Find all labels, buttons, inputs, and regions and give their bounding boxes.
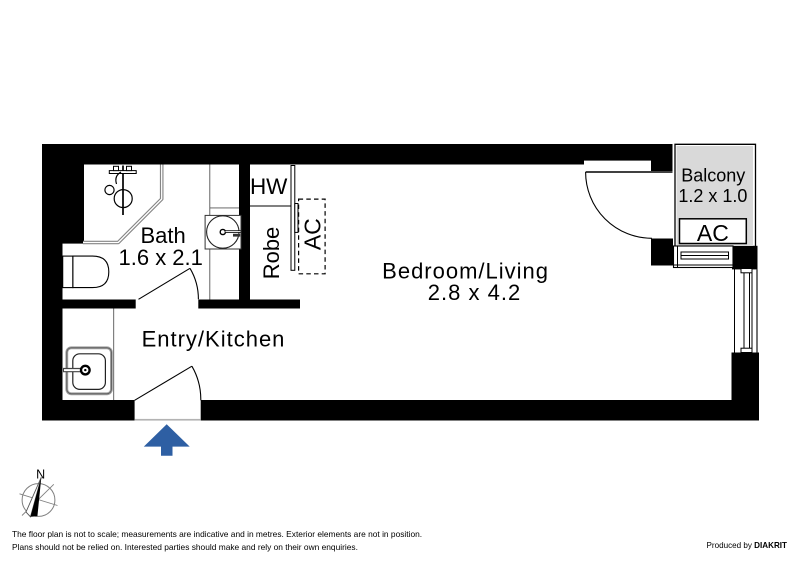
svg-text:Plans should not be relied on.: Plans should not be relied on. Intereste… xyxy=(12,542,358,552)
svg-text:Bath: Bath xyxy=(140,223,185,248)
svg-text:2.8 x 4.2: 2.8 x 4.2 xyxy=(428,280,521,305)
svg-text:Robe: Robe xyxy=(259,227,284,280)
svg-text:AC: AC xyxy=(300,218,326,250)
svg-text:Balcony: Balcony xyxy=(681,166,745,186)
svg-text:1.2 x 1.0: 1.2 x 1.0 xyxy=(678,186,747,206)
svg-text:HW: HW xyxy=(250,174,288,199)
svg-text:1.6 x 2.1: 1.6 x 2.1 xyxy=(119,245,203,270)
svg-text:N: N xyxy=(36,467,45,481)
svg-text:Produced by DIAKRIT: Produced by DIAKRIT xyxy=(706,541,787,550)
svg-text:AC: AC xyxy=(697,220,729,246)
svg-text:Entry/Kitchen: Entry/Kitchen xyxy=(142,327,286,352)
svg-text:The floor plan is not to scale: The floor plan is not to scale; measurem… xyxy=(12,529,422,539)
